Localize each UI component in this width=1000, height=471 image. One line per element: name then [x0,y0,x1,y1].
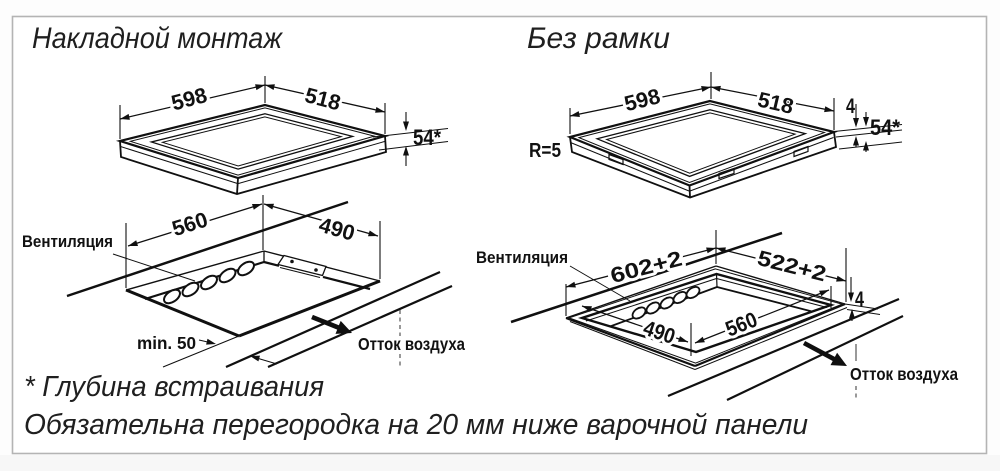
svg-text:4: 4 [855,288,864,311]
svg-text:54*: 54* [413,125,441,150]
svg-text:Накладной монтаж: Накладной монтаж [32,22,283,55]
svg-text:min. 50: min. 50 [137,333,196,353]
svg-text:4: 4 [846,95,855,118]
svg-text:Вентиляция: Вентиляция [476,249,568,267]
svg-text:* Глубина встраивания: * Глубина встраивания [24,371,324,403]
svg-text:Отток воздуха: Отток воздуха [850,364,958,384]
svg-text:R=5: R=5 [529,140,561,162]
svg-text:Без рамки: Без рамки [527,22,670,55]
svg-text:Обязательна перегородка на 20: Обязательна перегородка на 20 мм ниже ва… [24,409,808,441]
svg-text:54*: 54* [870,115,900,140]
svg-text:Вентиляция: Вентиляция [22,233,113,251]
svg-text:Отток воздуха: Отток воздуха [358,334,465,354]
